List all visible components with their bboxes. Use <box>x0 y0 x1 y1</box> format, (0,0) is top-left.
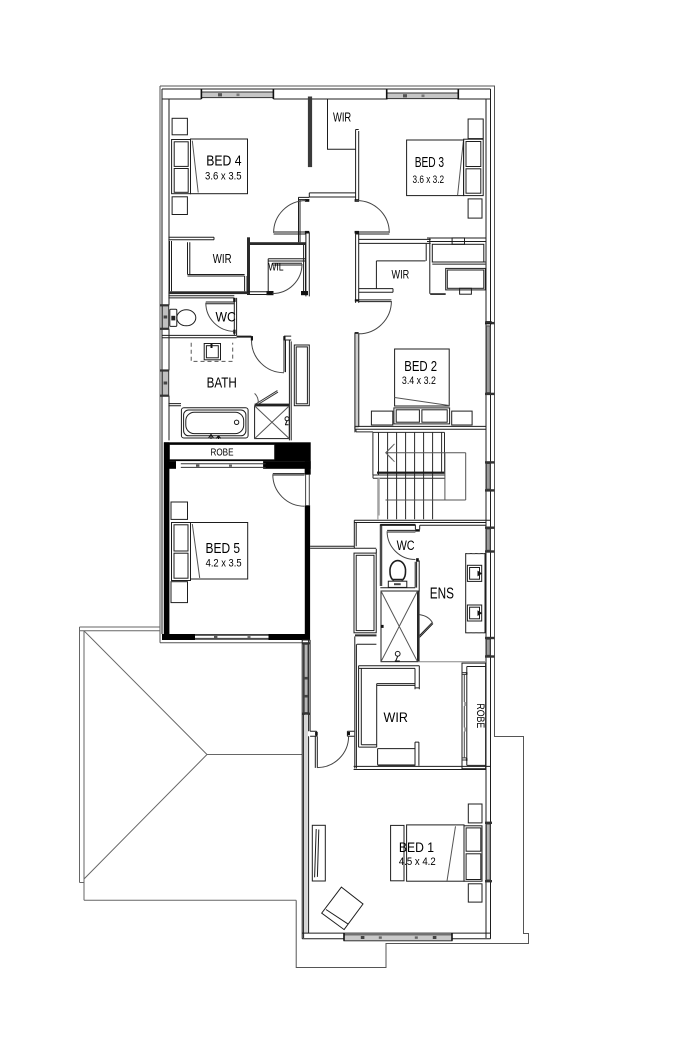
svg-text:WIL: WIL <box>268 262 283 274</box>
svg-text:ROBE: ROBE <box>211 447 234 458</box>
svg-text:WC: WC <box>397 538 415 554</box>
svg-text:3.6 x 3.2: 3.6 x 3.2 <box>413 174 445 186</box>
svg-text:BED 1: BED 1 <box>399 840 434 856</box>
svg-text:BED 4: BED 4 <box>206 153 241 169</box>
svg-text:BED 5: BED 5 <box>206 541 241 557</box>
svg-text:WIR: WIR <box>213 251 232 266</box>
svg-text:BED 2: BED 2 <box>404 359 437 375</box>
svg-text:WIR: WIR <box>333 109 351 124</box>
svg-text:WC: WC <box>216 310 236 325</box>
svg-text:BATH: BATH <box>207 376 237 392</box>
svg-text:WIR: WIR <box>384 709 408 725</box>
svg-text:ENS: ENS <box>430 586 454 603</box>
svg-text:3.4 x 3.2: 3.4 x 3.2 <box>402 375 436 387</box>
svg-text:ROBE: ROBE <box>474 703 486 728</box>
svg-text:BED 3: BED 3 <box>415 155 444 171</box>
svg-text:3.6 x 3.5: 3.6 x 3.5 <box>205 171 242 183</box>
svg-text:WIR: WIR <box>392 268 410 282</box>
svg-text:4.2 x 3.5: 4.2 x 3.5 <box>206 558 242 570</box>
svg-text:4.5 x 4.2: 4.5 x 4.2 <box>399 856 436 868</box>
